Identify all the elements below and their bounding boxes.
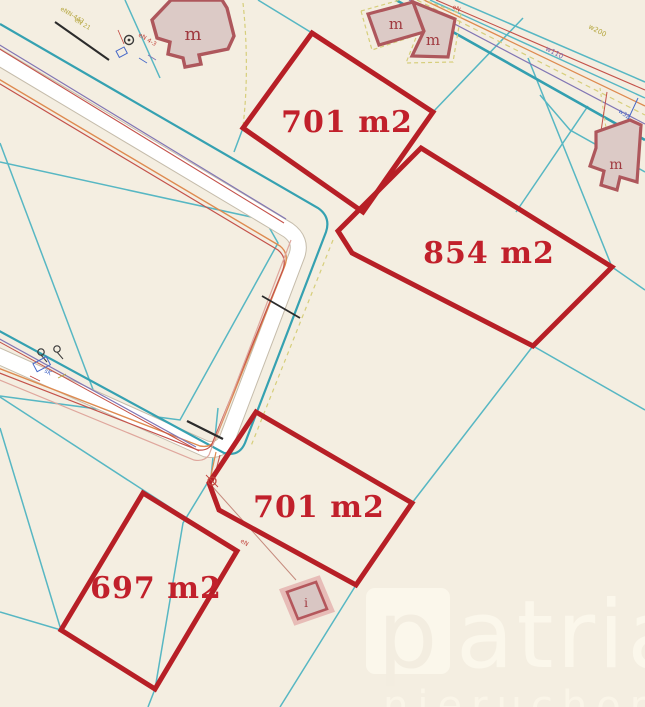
watermark-subtitle: nieruchomości <box>383 683 645 707</box>
parcel-area-697: 697 m2 <box>90 571 222 606</box>
cadastral-map-viewport[interactable]: p atria nieruchomości <box>0 0 645 707</box>
parcel-area-701-bottom: 701 m2 <box>253 490 385 525</box>
watermark: p atria nieruchomości <box>366 581 645 707</box>
building-label-2: m <box>389 15 403 33</box>
cadastral-map[interactable]: p atria nieruchomości <box>0 0 645 707</box>
watermark-logo-letter: p <box>378 581 441 690</box>
building-label-1: m <box>184 24 201 45</box>
watermark-title: atria <box>456 581 645 690</box>
building-label-3: m <box>426 31 440 49</box>
building-label-4: m <box>609 157 622 173</box>
parcel-area-701-top: 701 m2 <box>281 105 413 140</box>
building-label-5: i <box>304 596 308 610</box>
parcel-area-854: 854 m2 <box>423 236 555 271</box>
